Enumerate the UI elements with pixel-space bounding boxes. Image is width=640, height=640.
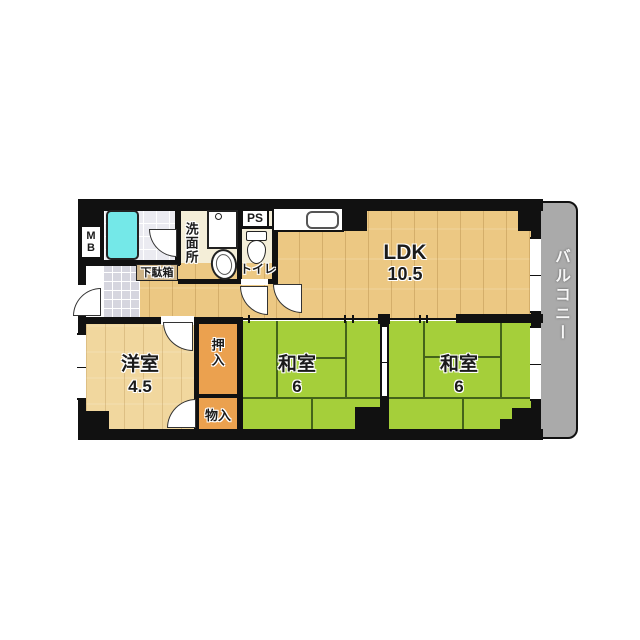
window <box>77 333 86 400</box>
tatami-left-label: 和室 <box>252 355 342 375</box>
window <box>530 326 541 401</box>
washroom-label: 洗面所 <box>184 222 198 264</box>
pillar <box>500 419 512 431</box>
tatami-line <box>345 321 347 398</box>
bathtub <box>106 210 139 260</box>
ldk-label: LDK <box>360 242 450 264</box>
fusuma-track <box>390 318 456 320</box>
pillar <box>85 411 109 431</box>
toilet-label: トイレ <box>238 263 278 276</box>
meter-box: MB <box>81 226 101 258</box>
tatami-left-area-label: 6 <box>252 378 342 396</box>
tatami-right-label: 和室 <box>414 355 504 375</box>
tatami-line <box>311 397 313 431</box>
pillar <box>355 407 381 431</box>
meter-box-label: MB <box>85 230 97 254</box>
pillar <box>343 199 367 231</box>
fusuma-track <box>243 318 381 320</box>
fusuma-tick <box>426 315 428 323</box>
fusuma-tick <box>419 315 421 323</box>
wall <box>456 314 543 323</box>
pipe-space-label: PS <box>247 212 263 225</box>
fusuma-tick <box>248 315 250 323</box>
wall <box>198 394 238 398</box>
kitchen-sink-icon <box>306 211 339 229</box>
toilet-door-opening <box>241 279 268 285</box>
fusuma-tick <box>352 315 354 323</box>
washing-machine-pan <box>207 210 238 249</box>
tatami-line <box>462 397 464 431</box>
entrance-tile-floor <box>103 263 140 318</box>
getabako-label: 下駄箱 <box>136 264 178 281</box>
window <box>530 237 541 313</box>
balcony-label: バルコニー <box>548 248 572 343</box>
tatami-right-area-label: 6 <box>414 378 504 396</box>
faucet-icon <box>215 213 222 220</box>
ldk-area-label: 10.5 <box>360 265 450 284</box>
floor-plan: LDK 10.5 和室 6 和室 6 洋室 4.5 押入 物入 洗面所 トイレ … <box>0 0 640 640</box>
wall <box>178 279 240 284</box>
western-room-label: 洋室 <box>95 355 185 375</box>
pipe-space-box: PS <box>241 209 269 228</box>
pillar <box>518 211 536 231</box>
sliding-door <box>382 327 387 396</box>
western-room-area-label: 4.5 <box>95 378 185 396</box>
fusuma-tick <box>344 315 346 323</box>
pillar <box>512 408 537 431</box>
oshiire-label: 押入 <box>210 338 224 368</box>
monoire-label: 物入 <box>198 409 238 423</box>
wall <box>78 429 543 440</box>
